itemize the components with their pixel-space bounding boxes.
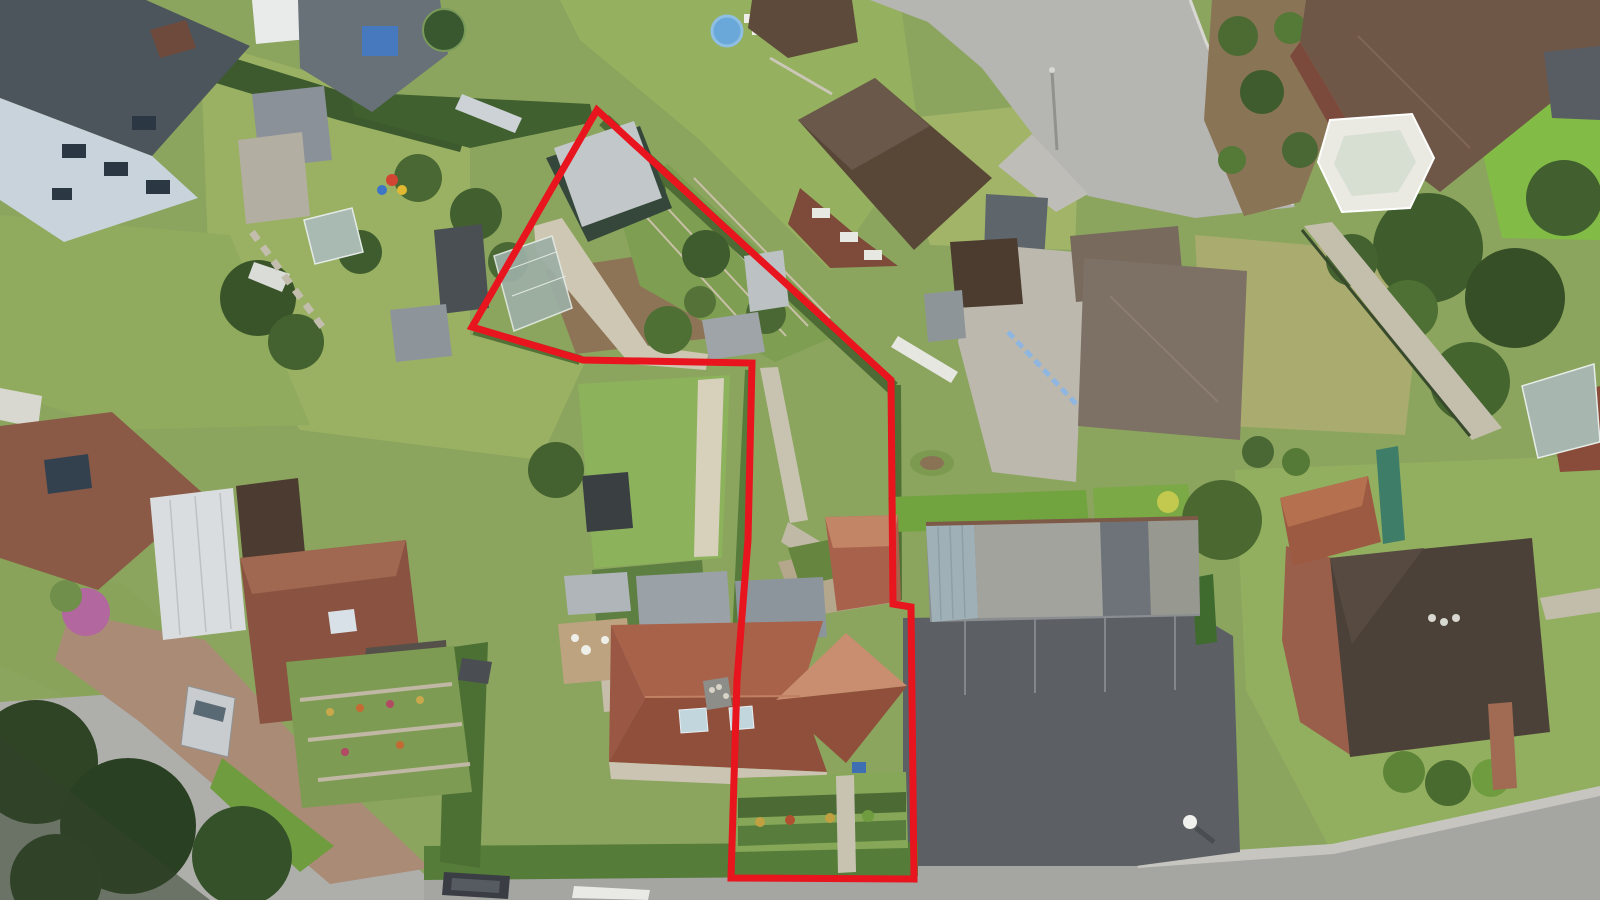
slate-patio <box>1544 46 1600 120</box>
pergola-grey <box>564 572 631 615</box>
roof-vent <box>1452 614 1460 622</box>
aerial-photograph <box>0 0 1600 900</box>
flower <box>416 696 424 704</box>
bush-yellow <box>1157 491 1179 513</box>
warehouse-roof-mid <box>974 520 1103 618</box>
patio-furniture <box>581 645 591 655</box>
paddling-pool <box>712 16 742 46</box>
flower <box>356 704 364 712</box>
patio-furniture <box>571 634 579 642</box>
bush <box>1218 146 1246 174</box>
bush <box>1242 436 1274 468</box>
blue-bin <box>852 762 866 773</box>
flower <box>396 741 404 749</box>
toy-blue <box>377 185 387 195</box>
house-b-skylight <box>328 609 357 634</box>
bush <box>862 810 874 822</box>
bush <box>50 580 82 612</box>
window <box>812 208 830 218</box>
flower <box>755 817 765 827</box>
flower <box>785 815 795 825</box>
flagstone-patio <box>238 132 310 224</box>
skylight <box>679 708 708 733</box>
blue-tarp <box>362 26 398 56</box>
black-shed <box>582 472 633 532</box>
subject-front-path <box>836 775 856 873</box>
house-a-solar-panel <box>44 454 92 494</box>
bush <box>1425 760 1471 806</box>
window <box>104 162 128 176</box>
roof-vent <box>1440 618 1448 626</box>
tree <box>644 306 692 354</box>
chimney-pot <box>716 684 722 690</box>
shed-grey-2 <box>924 290 966 342</box>
chimney-pot <box>709 687 715 693</box>
figure-white <box>1183 815 1197 829</box>
flower <box>341 748 349 756</box>
tree <box>1526 160 1600 236</box>
bush <box>1282 448 1310 476</box>
toy-red <box>386 174 398 186</box>
shed-dark-left <box>434 224 489 314</box>
lamppost-head <box>1049 67 1055 73</box>
toy-yellow <box>397 185 407 195</box>
bush <box>1282 132 1318 168</box>
chimney-pot <box>723 693 729 699</box>
flower <box>386 700 394 708</box>
window <box>52 188 72 200</box>
flower <box>825 813 835 823</box>
window <box>840 232 858 242</box>
tree <box>1465 248 1565 348</box>
warehouse-roof-dark-panel <box>1100 519 1151 616</box>
car-silver <box>181 686 235 757</box>
flower <box>326 708 334 716</box>
roof-vent <box>1428 614 1436 622</box>
tree <box>682 230 730 278</box>
tree <box>528 442 584 498</box>
car-on-drive <box>458 658 492 684</box>
flowerbed-circle-soil <box>920 456 944 470</box>
shed-grey-left <box>390 304 452 362</box>
aerial-photo-stage <box>0 0 1600 900</box>
window <box>62 144 86 158</box>
window <box>146 180 170 194</box>
warehouse-roof-right <box>1148 517 1200 615</box>
brick-path-br <box>1488 702 1517 790</box>
carport-white <box>150 488 246 640</box>
garage-subject-roof-top <box>825 515 898 548</box>
bush <box>1218 16 1258 56</box>
bush <box>1240 70 1284 114</box>
trampoline <box>423 9 465 51</box>
small-shed-b <box>702 312 765 360</box>
bungalow-main-roof <box>1078 258 1247 440</box>
bush <box>1383 751 1425 793</box>
window <box>864 250 882 260</box>
patio-furniture <box>601 636 609 644</box>
tree <box>684 286 716 318</box>
window <box>132 116 156 130</box>
